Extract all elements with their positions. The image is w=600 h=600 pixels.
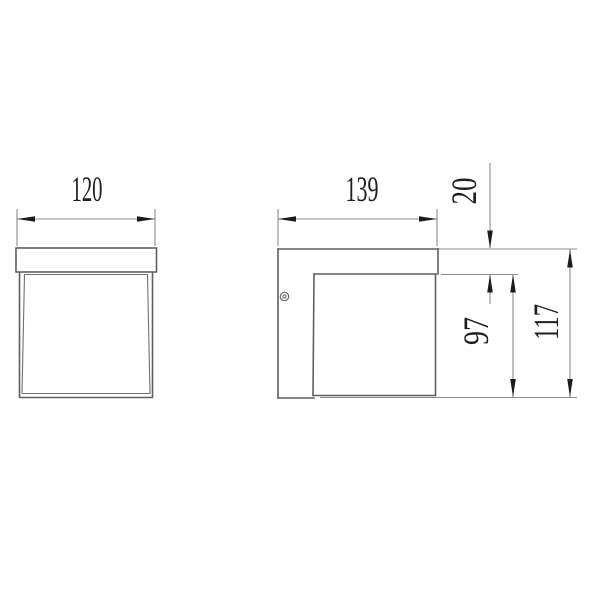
side-top-inset-dim-label: 20 <box>444 178 484 205</box>
front-view: 120 <box>16 169 157 398</box>
arrow-down-icon <box>567 379 573 397</box>
side-box-left-edge <box>313 274 314 396</box>
side-view: 139 <box>278 163 577 398</box>
side-total-height-dim-label: 117 <box>526 304 566 340</box>
side-depth-dimension: 139 <box>278 169 437 246</box>
side-depth-dim-label: 139 <box>346 169 379 209</box>
front-body-outer-frame <box>20 273 153 398</box>
arrow-up-icon <box>487 275 493 293</box>
dimension-drawing: 120 139 <box>0 0 600 600</box>
screw-icon <box>280 292 288 300</box>
side-total-height-dimension: 117 <box>526 250 573 398</box>
arrow-down-icon <box>510 379 516 397</box>
front-width-dimension: 120 <box>17 169 155 246</box>
drawing-canvas: 120 139 <box>0 0 600 600</box>
arrow-down-icon <box>487 231 493 249</box>
front-body <box>20 273 153 398</box>
front-top-cap <box>16 248 157 272</box>
front-body-inner-frame <box>22 275 150 394</box>
arrow-up-icon <box>510 275 516 293</box>
front-width-dim-label: 120 <box>72 169 103 209</box>
arrow-right-icon <box>419 216 437 222</box>
arrow-left-icon <box>17 216 35 222</box>
side-body-height-dimension: 97 <box>456 275 516 398</box>
side-body-height-dim-label: 97 <box>456 317 496 345</box>
side-top-inset-dimension: 20 <box>444 163 493 304</box>
arrow-left-icon <box>278 216 296 222</box>
arrow-up-icon <box>567 250 573 268</box>
arrow-right-icon <box>137 216 155 222</box>
